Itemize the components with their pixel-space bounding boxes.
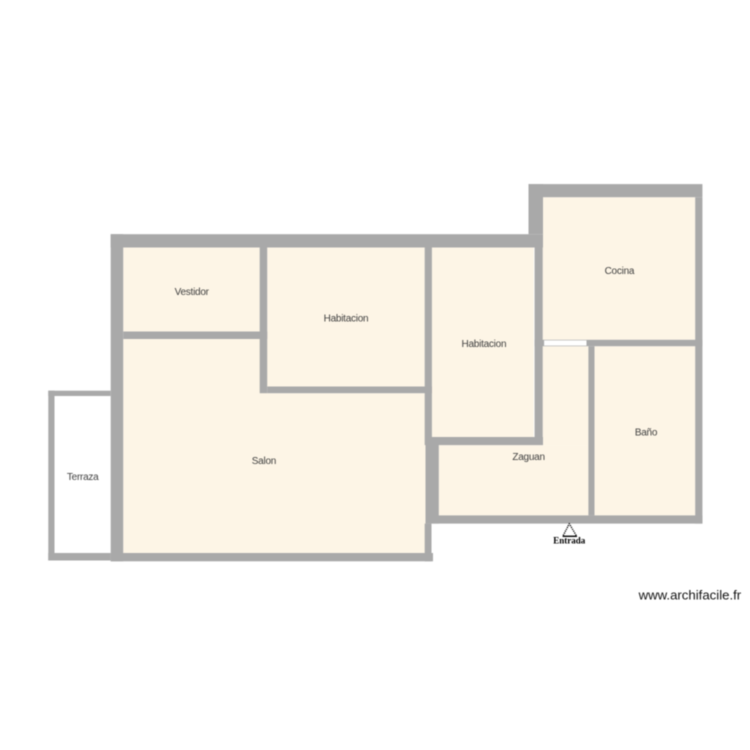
svg-text:Entrada: Entrada [553, 536, 586, 546]
svg-text:www.archifacile.fr: www.archifacile.fr [638, 588, 742, 603]
svg-text:Baño: Baño [635, 428, 658, 439]
svg-text:Terraza: Terraza [67, 472, 99, 483]
svg-text:Habitacion: Habitacion [462, 339, 507, 350]
svg-text:Cocina: Cocina [605, 266, 635, 277]
svg-text:Habitacion: Habitacion [324, 314, 369, 325]
svg-text:Vestidor: Vestidor [175, 287, 210, 298]
svg-text:Zaguan: Zaguan [512, 452, 544, 463]
svg-text:Salon: Salon [252, 456, 276, 467]
